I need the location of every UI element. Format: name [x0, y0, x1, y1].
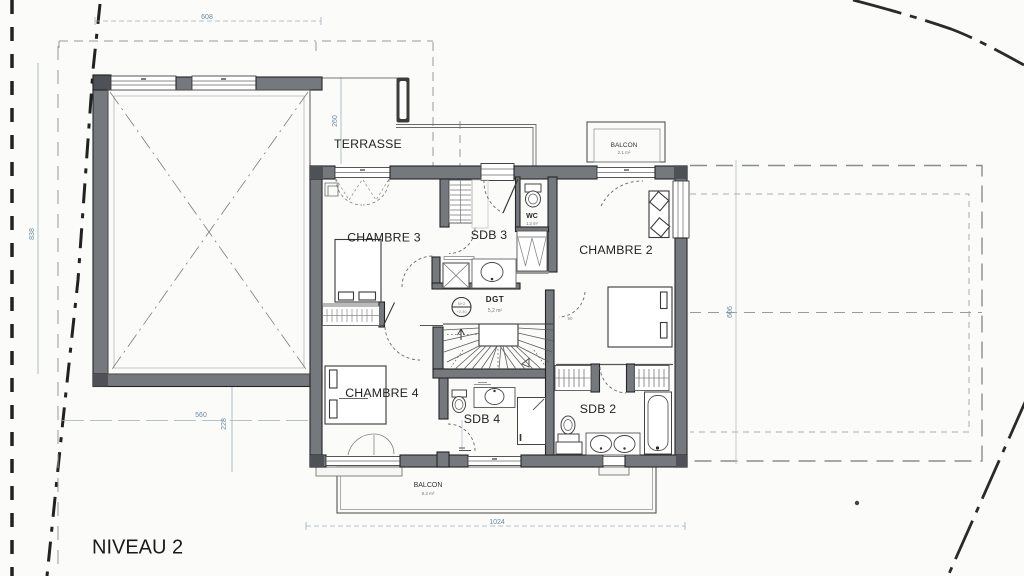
svg-text:2.1 m²: 2.1 m²: [618, 150, 631, 155]
svg-text:606: 606: [727, 306, 734, 318]
svg-text:+2.30: +2.30: [456, 309, 467, 314]
svg-text:1.3 m²: 1.3 m²: [526, 221, 538, 226]
svg-text:SDB 2: SDB 2: [580, 402, 617, 416]
svg-text:1024: 1024: [489, 519, 505, 526]
svg-text:CHAMBRE 3: CHAMBRE 3: [347, 231, 421, 245]
svg-text:260: 260: [332, 115, 339, 127]
svg-text:608: 608: [201, 14, 213, 21]
svg-text:9.2 m²: 9.2 m²: [422, 491, 435, 496]
svg-text:228: 228: [221, 418, 228, 430]
svg-text:560: 560: [195, 412, 207, 419]
svg-text:CHAMBRE 2: CHAMBRE 2: [579, 243, 653, 257]
svg-text:TERRASSE: TERRASSE: [334, 137, 402, 151]
svg-text:90: 90: [567, 316, 573, 321]
svg-text:CHAMBRE 4: CHAMBRE 4: [345, 386, 419, 400]
svg-text:BALCON: BALCON: [611, 142, 638, 149]
svg-text:838: 838: [29, 228, 36, 240]
svg-text:5,2 m²: 5,2 m²: [488, 308, 503, 314]
svg-text:N+2: N+2: [458, 301, 466, 306]
svg-text:NIVEAU 2: NIVEAU 2: [92, 537, 183, 559]
svg-text:BALCON: BALCON: [414, 482, 443, 489]
svg-text:SDB 3: SDB 3: [471, 228, 508, 242]
svg-text:WC: WC: [526, 213, 538, 220]
svg-text:DGT: DGT: [486, 295, 504, 304]
svg-text:SDB 4: SDB 4: [464, 412, 501, 426]
